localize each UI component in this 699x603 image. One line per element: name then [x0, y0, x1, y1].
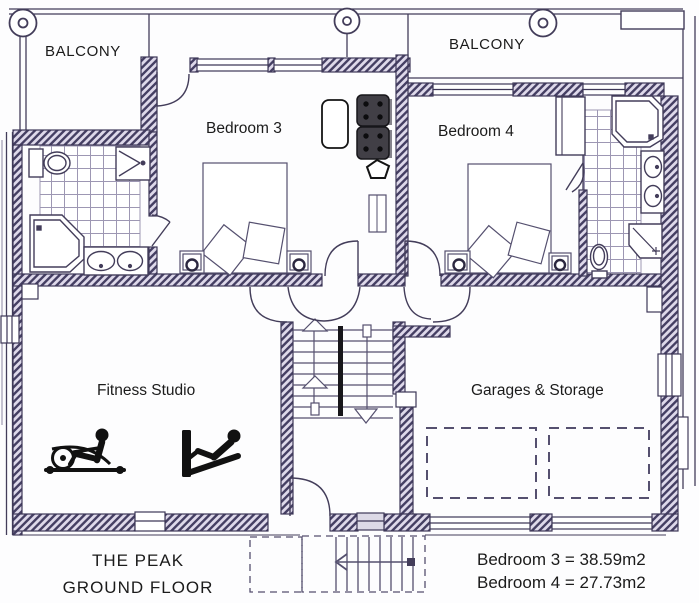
corner-bath-icon	[612, 96, 663, 147]
bedroom3-furniture	[180, 163, 311, 275]
planter-box	[621, 11, 684, 29]
parking-bay-icon	[549, 428, 649, 498]
bedroom4-furniture	[445, 164, 571, 278]
parking-bay-icon	[427, 428, 536, 498]
window	[357, 513, 384, 530]
armchair-icon	[357, 127, 389, 159]
room-label-bedroom3: Bedroom 3	[206, 120, 282, 138]
window	[274, 59, 322, 71]
window	[658, 354, 681, 396]
vanity-sinks	[641, 151, 664, 213]
area-note-bedroom3: Bedroom 3 = 38.59m2	[477, 550, 646, 570]
window	[583, 84, 625, 95]
bedside-lamp-icon	[454, 260, 465, 271]
vanity-sinks	[84, 247, 148, 275]
bedside-table	[287, 251, 311, 273]
external-stairs	[250, 536, 425, 592]
door-arc-icon	[405, 241, 440, 276]
bedside-lamp-icon	[294, 260, 305, 271]
door-arc-icon	[433, 287, 470, 322]
bedside-table	[180, 251, 204, 273]
entry-landing	[250, 537, 302, 592]
pentagon-stool-icon	[367, 160, 389, 178]
window	[433, 84, 513, 95]
incline-bench-icon	[182, 430, 241, 478]
garage-door	[430, 517, 530, 529]
toilet-icon	[591, 245, 608, 279]
room-label-balcony-left: BALCONY	[45, 43, 121, 60]
door-arc-icon	[325, 241, 358, 276]
rowing-machine-icon	[46, 429, 124, 475]
duct-box	[396, 392, 416, 407]
armchair-icon	[357, 95, 389, 126]
door-arc-icon	[152, 215, 170, 246]
room-label-fitness: Fitness Studio	[97, 382, 195, 400]
bedside-table	[549, 253, 571, 273]
pillow-icon	[243, 222, 285, 264]
bedside-lamp-icon	[555, 260, 565, 270]
stairs-icon	[293, 319, 393, 423]
garage-door	[552, 517, 652, 529]
wardrobe	[556, 97, 585, 155]
door-arc-icon	[157, 72, 189, 106]
toilet-icon	[29, 149, 70, 177]
floor-plan: BALCONY BALCONY Bedroom 3 Bedroom 4 Fitn…	[0, 0, 699, 603]
rug-icon	[322, 100, 348, 148]
door-arc-icon	[250, 287, 287, 322]
door-arc-icon	[288, 287, 360, 321]
plan-title: THE PEAK	[53, 551, 223, 571]
parking-bays	[427, 428, 649, 498]
wall-nib	[22, 284, 38, 299]
area-note-bedroom4: Bedroom 4 = 27.73m2	[477, 573, 646, 593]
stair-down-arrow	[355, 409, 377, 423]
bedside-table	[445, 251, 470, 273]
floor-plan-drawing	[0, 0, 699, 603]
room-label-bedroom4: Bedroom 4	[438, 123, 514, 141]
window	[1, 316, 19, 343]
room-label-garage: Garages & Storage	[471, 382, 604, 400]
door-arc-icon	[566, 163, 584, 192]
service-panel	[647, 287, 662, 312]
window	[197, 59, 268, 71]
stair-handrail	[338, 326, 343, 416]
stair-up-arrow	[303, 376, 327, 388]
window	[135, 512, 165, 531]
plan-subtitle: GROUND FLOOR	[53, 578, 223, 598]
room-label-balcony-right: BALCONY	[449, 36, 525, 53]
bedside-lamp-icon	[187, 260, 198, 271]
hall-furniture	[322, 95, 392, 232]
shower-icon	[116, 147, 150, 180]
door-arc-icon	[290, 478, 330, 516]
door-arc-icon	[404, 287, 431, 319]
